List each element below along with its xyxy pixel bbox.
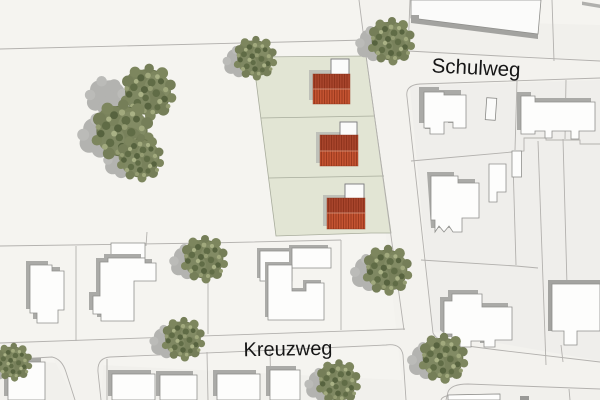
svg-text:Schulweg: Schulweg xyxy=(431,54,521,81)
svg-text:Kreuzweg: Kreuzweg xyxy=(243,338,332,362)
